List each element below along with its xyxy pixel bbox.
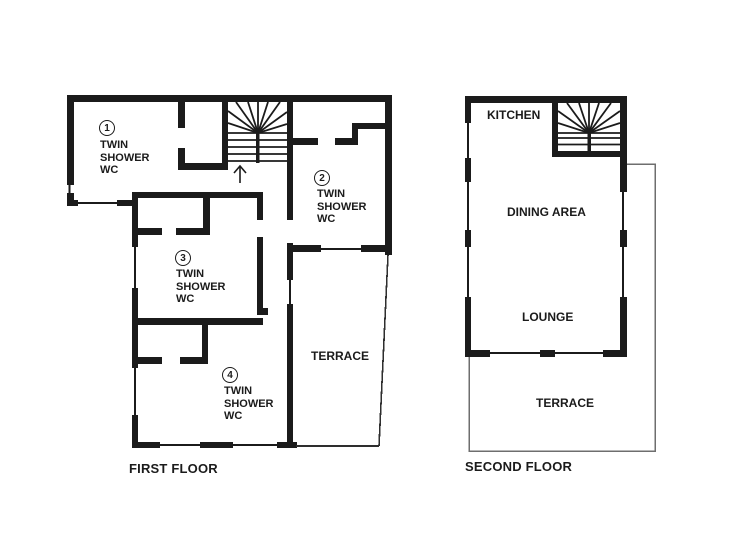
window xyxy=(134,247,136,288)
wall xyxy=(132,357,162,364)
wall xyxy=(552,151,627,157)
first-floor-title: FIRST FLOOR xyxy=(129,461,218,476)
stair-fan xyxy=(558,103,620,133)
window xyxy=(467,182,469,230)
wall xyxy=(176,228,210,235)
wall xyxy=(465,350,490,357)
wall xyxy=(620,96,627,192)
wall xyxy=(552,96,558,157)
wall xyxy=(135,318,263,325)
wall xyxy=(603,350,627,357)
staircase-second-floor xyxy=(558,103,620,151)
room-2-label: TWIN SHOWER WC xyxy=(317,188,367,226)
terrace-label-second-floor: TERRACE xyxy=(536,396,594,410)
wall xyxy=(465,96,471,123)
dining-area-label: DINING AREA xyxy=(507,205,586,219)
window xyxy=(233,444,277,446)
room-4-label: TWIN SHOWER WC xyxy=(224,385,274,423)
room-4-number-badge: 4 xyxy=(222,367,238,383)
wall xyxy=(67,95,74,185)
wall xyxy=(465,297,471,357)
window xyxy=(622,192,624,230)
wall xyxy=(132,192,263,198)
wall xyxy=(132,442,160,448)
wall xyxy=(257,237,263,315)
wall xyxy=(132,288,138,368)
wall xyxy=(67,95,392,102)
wall xyxy=(178,163,222,170)
room-1-label: TWIN SHOWER WC xyxy=(100,139,150,177)
kitchen-label: KITCHEN xyxy=(487,108,540,122)
wall xyxy=(465,158,471,182)
wall xyxy=(293,138,318,145)
staircase-first-floor xyxy=(228,102,287,183)
wall xyxy=(257,198,263,220)
window xyxy=(289,280,291,304)
wall xyxy=(620,230,627,247)
wall xyxy=(67,200,78,206)
window xyxy=(622,247,624,297)
wall xyxy=(132,192,138,247)
room-3-number-badge: 3 xyxy=(175,250,191,266)
stair-fan xyxy=(228,102,287,133)
room-3-label: TWIN SHOWER WC xyxy=(176,268,226,306)
wall xyxy=(465,96,627,103)
stair-divider xyxy=(588,133,592,151)
wall xyxy=(287,304,293,445)
wall xyxy=(222,95,228,170)
wall xyxy=(465,230,471,247)
window xyxy=(467,123,469,158)
terrace-label-first-floor: TERRACE xyxy=(311,349,369,363)
wall xyxy=(178,102,185,128)
floor-plan-canvas: 1 TWIN SHOWER WC 2 TWIN SHOWER WC 3 TWIN… xyxy=(0,0,750,555)
wall xyxy=(385,95,392,255)
wall xyxy=(200,442,233,448)
window xyxy=(467,247,469,297)
wall xyxy=(132,228,162,235)
room-2-number-badge: 2 xyxy=(314,170,330,186)
window xyxy=(69,185,71,193)
floor-plan-drawing xyxy=(0,0,750,555)
wall xyxy=(287,95,293,220)
window xyxy=(321,248,361,250)
window xyxy=(490,352,540,354)
window xyxy=(555,352,603,354)
window xyxy=(160,444,200,446)
wall xyxy=(335,138,358,145)
window xyxy=(78,202,117,204)
wall xyxy=(540,350,555,357)
second-floor-title: SECOND FLOOR xyxy=(465,459,572,474)
window xyxy=(134,368,136,415)
wall xyxy=(287,245,321,252)
room-1-number-badge: 1 xyxy=(99,120,115,136)
wall xyxy=(263,308,268,315)
stair-divider xyxy=(256,133,260,163)
wall xyxy=(180,357,208,364)
wall xyxy=(620,297,627,357)
up-arrow-icon xyxy=(234,166,246,183)
lounge-label: LOUNGE xyxy=(522,310,573,324)
